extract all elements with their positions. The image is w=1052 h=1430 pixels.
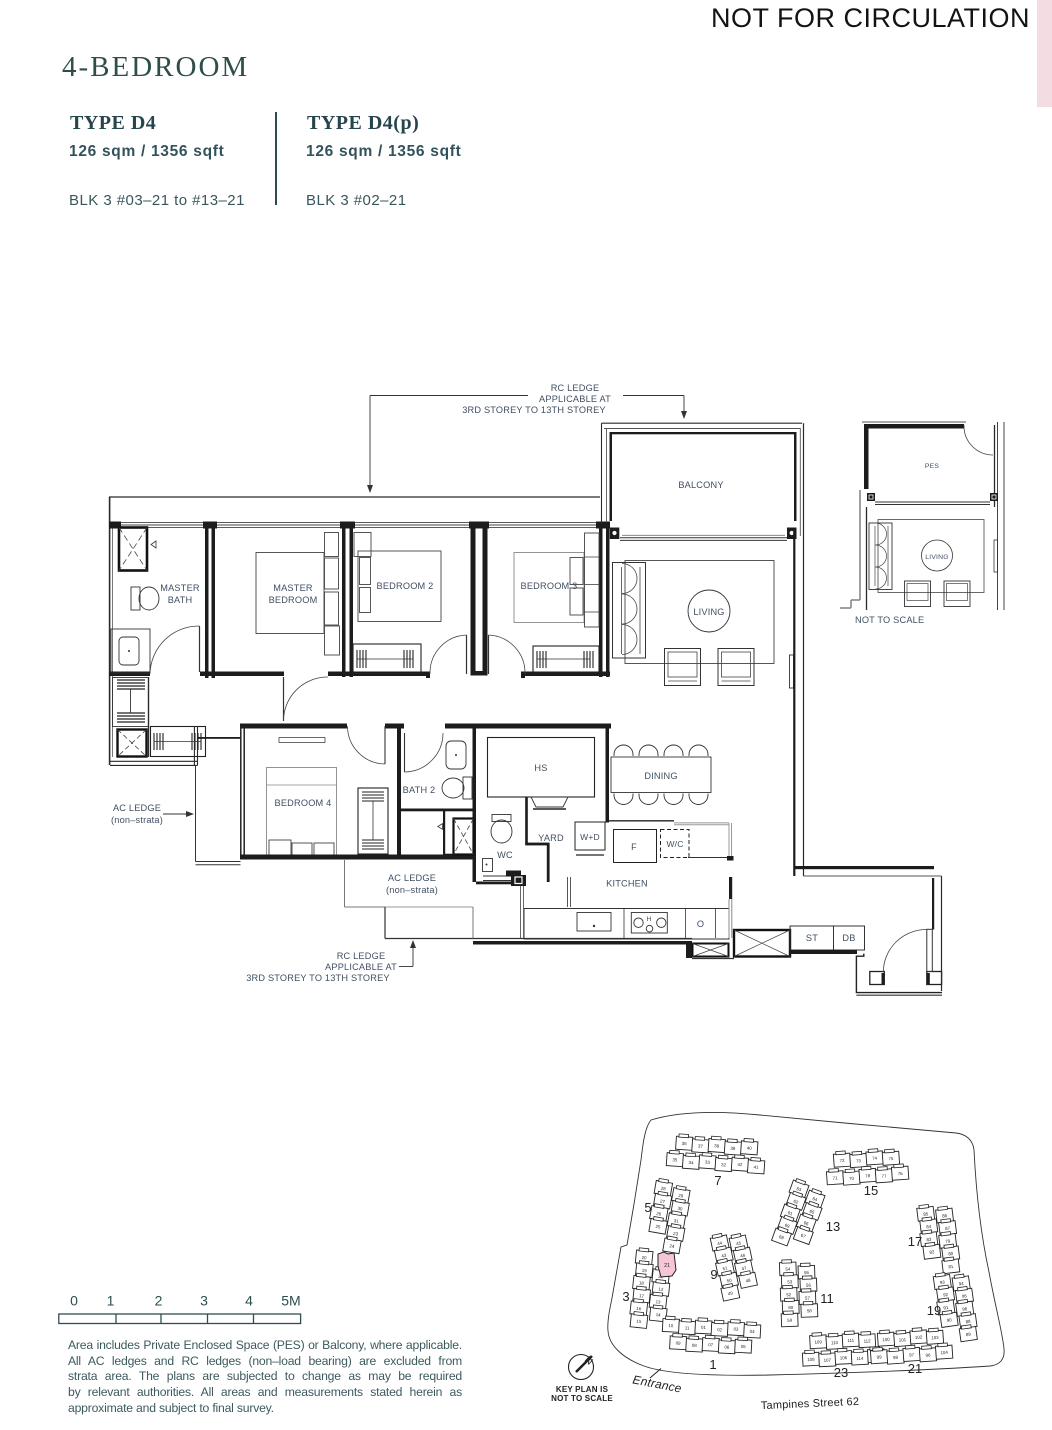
- svg-text:73: 73: [856, 1158, 862, 1163]
- svg-text:01: 01: [701, 1325, 707, 1330]
- svg-text:75: 75: [888, 1156, 894, 1161]
- svg-text:5M: 5M: [281, 1293, 300, 1309]
- svg-text:KITCHEN: KITCHEN: [606, 879, 648, 889]
- svg-text:3RD STOREY TO 13TH STOREY: 3RD STOREY TO 13TH STOREY: [462, 405, 606, 415]
- svg-text:2: 2: [155, 1293, 163, 1309]
- svg-text:54: 54: [785, 1267, 791, 1272]
- svg-text:HS: HS: [534, 763, 547, 773]
- svg-text:41: 41: [753, 1164, 759, 1169]
- svg-text:DB: DB: [842, 933, 855, 943]
- svg-text:17: 17: [908, 1234, 922, 1249]
- svg-text:42: 42: [737, 1162, 743, 1167]
- svg-text:56: 56: [806, 1283, 812, 1288]
- svg-text:36: 36: [682, 1141, 688, 1146]
- svg-text:AC LEDGE: AC LEDGE: [388, 873, 436, 883]
- svg-text:NOT TO SCALE: NOT TO SCALE: [855, 615, 924, 625]
- svg-text:O: O: [697, 919, 704, 929]
- svg-text:21: 21: [664, 1263, 670, 1269]
- svg-text:102: 102: [915, 1334, 923, 1340]
- svg-text:114: 114: [856, 1356, 864, 1361]
- svg-text:03: 03: [733, 1326, 739, 1331]
- svg-text:04: 04: [750, 1329, 756, 1334]
- svg-text:106: 106: [840, 1355, 848, 1360]
- svg-text:57: 57: [805, 1295, 811, 1300]
- svg-text:1: 1: [709, 1357, 716, 1372]
- svg-text:06: 06: [724, 1345, 730, 1350]
- svg-text:Entrance: Entrance: [631, 1372, 683, 1395]
- svg-text:MASTER: MASTER: [160, 583, 200, 593]
- svg-text:BALCONY: BALCONY: [678, 480, 723, 490]
- svg-text:YARD: YARD: [538, 833, 564, 843]
- svg-text:110: 110: [831, 1340, 839, 1345]
- svg-text:ST: ST: [806, 933, 818, 943]
- svg-text:NOT TO SCALE: NOT TO SCALE: [551, 1394, 613, 1403]
- svg-text:10: 10: [668, 1323, 674, 1328]
- svg-text:Tampines Street 62: Tampines Street 62: [761, 1396, 860, 1412]
- svg-text:58: 58: [807, 1308, 813, 1313]
- svg-text:3RD STOREY TO 13TH STOREY: 3RD STOREY TO 13TH STOREY: [246, 973, 390, 983]
- svg-text:37: 37: [698, 1144, 704, 1149]
- svg-text:99: 99: [877, 1354, 883, 1359]
- svg-text:53: 53: [787, 1279, 793, 1284]
- svg-text:111: 111: [847, 1338, 854, 1343]
- svg-text:32: 32: [721, 1162, 727, 1167]
- svg-text:BATH: BATH: [168, 595, 193, 605]
- svg-text:RC LEDGE: RC LEDGE: [551, 383, 600, 393]
- svg-text:96: 96: [925, 1352, 931, 1357]
- svg-text:15: 15: [864, 1183, 878, 1198]
- svg-text:H: H: [646, 916, 651, 923]
- svg-text:(non–strata): (non–strata): [111, 815, 163, 825]
- svg-text:34: 34: [688, 1160, 694, 1165]
- svg-text:5: 5: [644, 1200, 651, 1215]
- svg-text:05: 05: [741, 1344, 747, 1349]
- svg-text:1: 1: [107, 1293, 115, 1309]
- svg-text:71: 71: [833, 1175, 839, 1180]
- svg-text:3: 3: [622, 1289, 629, 1304]
- svg-text:19: 19: [927, 1303, 941, 1318]
- svg-text:52: 52: [786, 1292, 792, 1297]
- svg-text:APPLICABLE AT: APPLICABLE AT: [325, 962, 397, 972]
- svg-text:60: 60: [788, 1305, 794, 1310]
- svg-text:55: 55: [804, 1270, 810, 1275]
- svg-text:(non–strata): (non–strata): [386, 885, 438, 895]
- svg-text:97: 97: [909, 1352, 915, 1357]
- svg-text:33: 33: [705, 1160, 711, 1165]
- svg-text:109: 109: [814, 1339, 822, 1344]
- svg-text:KEY PLAN IS: KEY PLAN IS: [556, 1385, 609, 1394]
- svg-text:3: 3: [200, 1293, 208, 1309]
- svg-text:98: 98: [893, 1355, 899, 1360]
- svg-text:35: 35: [672, 1157, 678, 1162]
- svg-text:101: 101: [899, 1337, 907, 1343]
- svg-text:107: 107: [824, 1357, 832, 1362]
- svg-text:BEDROOM 3: BEDROOM 3: [521, 581, 578, 591]
- svg-text:09: 09: [676, 1340, 682, 1345]
- svg-text:40: 40: [747, 1145, 753, 1150]
- svg-text:23: 23: [834, 1365, 848, 1380]
- svg-text:AC LEDGE: AC LEDGE: [113, 803, 161, 813]
- svg-text:MASTER: MASTER: [273, 583, 313, 593]
- svg-text:108: 108: [807, 1357, 815, 1362]
- svg-text:13: 13: [826, 1219, 840, 1234]
- svg-text:9: 9: [710, 1267, 717, 1282]
- svg-text:07: 07: [708, 1342, 714, 1347]
- svg-text:72: 72: [839, 1158, 845, 1163]
- svg-text:77: 77: [881, 1173, 887, 1178]
- svg-text:BEDROOM 4: BEDROOM 4: [275, 798, 332, 808]
- svg-text:4: 4: [245, 1293, 253, 1309]
- svg-text:112: 112: [863, 1338, 871, 1343]
- svg-text:70: 70: [849, 1176, 855, 1181]
- svg-text:74: 74: [872, 1156, 878, 1161]
- svg-text:0: 0: [70, 1293, 78, 1309]
- svg-text:39: 39: [730, 1146, 736, 1151]
- svg-text:BEDROOM 2: BEDROOM 2: [377, 581, 434, 591]
- svg-text:F: F: [631, 842, 637, 852]
- svg-text:APPLICABLE AT: APPLICABLE AT: [539, 394, 611, 404]
- svg-text:78: 78: [865, 1173, 871, 1178]
- svg-text:38: 38: [714, 1143, 720, 1148]
- svg-text:W+D: W+D: [580, 832, 600, 842]
- svg-text:W/C: W/C: [666, 839, 683, 849]
- svg-text:WC: WC: [497, 850, 513, 860]
- svg-text:LIVING: LIVING: [925, 554, 949, 561]
- svg-text:PES: PES: [925, 463, 939, 470]
- svg-text:11: 11: [685, 1325, 690, 1330]
- svg-text:59: 59: [787, 1318, 793, 1323]
- svg-text:08: 08: [692, 1343, 698, 1348]
- svg-text:104: 104: [940, 1350, 948, 1356]
- svg-text:100: 100: [882, 1337, 890, 1343]
- svg-text:DINING: DINING: [644, 771, 677, 781]
- svg-text:BATH 2: BATH 2: [403, 785, 436, 795]
- svg-text:RC LEDGE: RC LEDGE: [337, 951, 386, 961]
- svg-text:76: 76: [898, 1171, 904, 1176]
- svg-text:103: 103: [931, 1335, 939, 1341]
- svg-text:LIVING: LIVING: [693, 607, 724, 617]
- svg-text:BEDROOM: BEDROOM: [269, 595, 318, 605]
- svg-text:7: 7: [714, 1173, 721, 1188]
- svg-text:02: 02: [717, 1327, 723, 1332]
- svg-text:11: 11: [820, 1291, 834, 1306]
- svg-text:21: 21: [908, 1361, 922, 1376]
